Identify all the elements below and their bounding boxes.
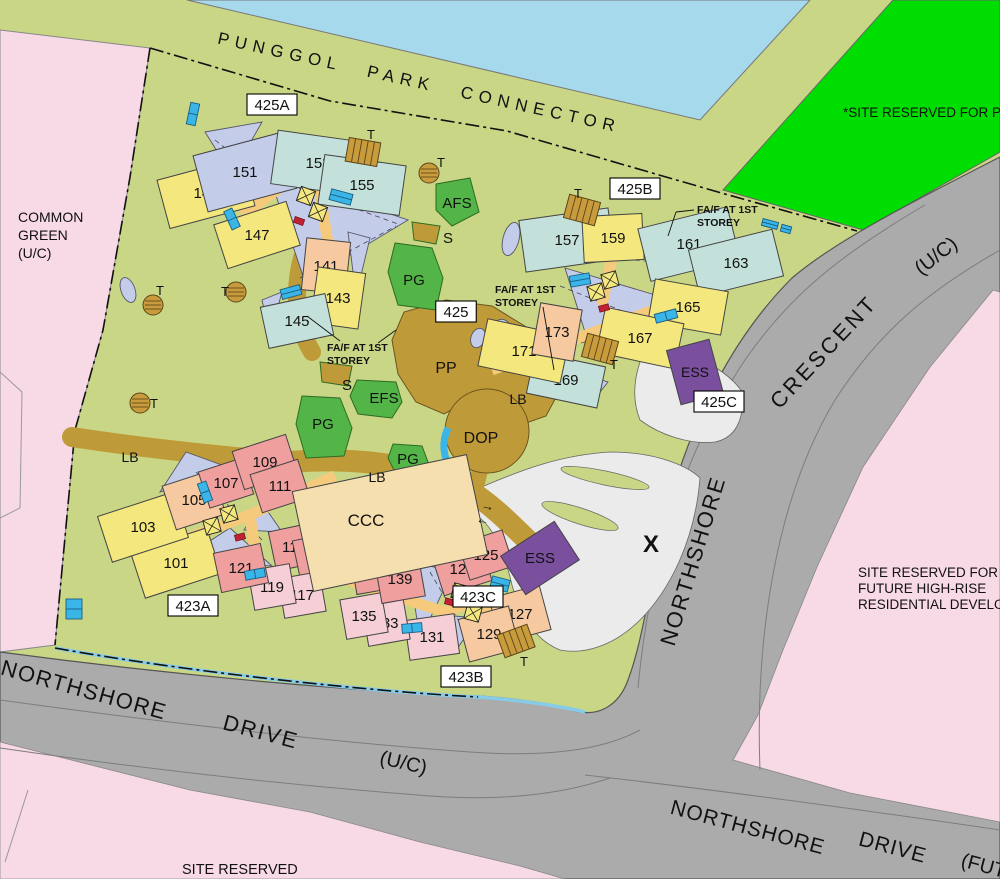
annotation-faf-3: FA/F AT 1ST (697, 204, 758, 216)
building-label-163: 163 (723, 255, 748, 272)
building-label-131: 131 (419, 629, 444, 646)
amenity-marker (402, 623, 423, 634)
building-label-155: 155 (349, 177, 374, 194)
zone-label-highrise-reserve: SITE RESERVED FOR (858, 565, 998, 580)
label-t: T (221, 284, 229, 299)
label-lb: LB (368, 469, 385, 485)
zone-label-highrise-reserve: FUTURE HIGH-RISE (858, 581, 986, 596)
lift-lobby-marker (587, 283, 605, 301)
amenity-marker (66, 599, 82, 619)
building-label-145: 145 (284, 313, 309, 330)
lift-lobby-marker (203, 517, 221, 535)
label-t: T (150, 396, 158, 411)
label-lb: LB (121, 449, 138, 465)
facility-label-pg: PG (312, 416, 334, 433)
building-label-151: 151 (232, 164, 257, 181)
lift-lobby-marker (601, 271, 619, 289)
facility-label-s: S (443, 230, 453, 247)
label-t: T (156, 283, 164, 298)
annotation-faf-2: FA/F AT 1ST (495, 284, 556, 296)
label-t: T (367, 127, 375, 142)
annotation-faf-3: STOREY (697, 217, 740, 229)
tree-marker (130, 393, 150, 413)
site-map-canvas: PGAFSPGEFSPGSS14915115315514714114314515… (0, 0, 1000, 879)
building-label-107: 107 (213, 475, 238, 492)
label-t: T (574, 186, 582, 201)
building-label-103: 103 (130, 519, 155, 536)
building-label-167: 167 (627, 330, 652, 347)
label-pp: PP (435, 360, 456, 377)
label-t: T (437, 155, 445, 170)
label-t: T (520, 654, 528, 669)
zone-label-park-reserve: *SITE RESERVED FOR PA (843, 105, 1000, 120)
lift-lobby-marker (220, 505, 238, 523)
zone-label-common-green: (U/C) (18, 245, 51, 261)
block-label-425A: 425A (254, 97, 289, 114)
building-label-159: 159 (600, 230, 625, 247)
tree-marker (419, 163, 439, 183)
zone-label-common-green: COMMON (18, 209, 83, 225)
tree-marker (143, 295, 163, 315)
label-t: T (610, 357, 618, 372)
facility-label-s: S (342, 377, 352, 394)
trellis-marker (345, 137, 381, 166)
building-label-ESS: ESS (525, 550, 555, 567)
red-x-marker: X (643, 531, 659, 558)
zone-label-highrise-reserve: RESIDENTIAL DEVELOP (858, 597, 1000, 612)
building-label-157: 157 (554, 232, 579, 249)
facility-label-efs: EFS (369, 390, 398, 407)
block-label-425C: 425C (701, 394, 737, 411)
block-label-425: 425 (443, 304, 468, 321)
block-label-423C: 423C (460, 589, 496, 606)
building-label-165: 165 (675, 299, 700, 316)
building-label-143: 143 (325, 290, 350, 307)
building-label-135: 135 (351, 608, 376, 625)
label-dop: DOP (464, 430, 499, 447)
building-label-CCC: CCC (348, 511, 385, 530)
trellis-box (345, 137, 381, 166)
building-label-ESS: ESS (681, 364, 709, 380)
block-label-423A: 423A (175, 598, 210, 615)
zone-label-site-reserved-bottom: SITE RESERVED (182, 862, 298, 878)
building-label-147: 147 (244, 227, 269, 244)
facility-label-afs: AFS (442, 195, 471, 212)
block-label-423B: 423B (448, 669, 483, 686)
annotation-faf-1: FA/F AT 1ST (327, 342, 388, 354)
annotation-faf-2: STOREY (495, 297, 538, 309)
site-plan-page: PGAFSPGEFSPGSS14915115315514714114314515… (0, 0, 1000, 879)
zone-label-common-green: GREEN (18, 227, 68, 243)
tree-marker (226, 282, 246, 302)
building-label-101: 101 (163, 555, 188, 572)
label-lb: LB (509, 391, 526, 407)
facility-s (412, 222, 440, 244)
facility-label-pg: PG (403, 272, 425, 289)
annotation-faf-1: STOREY (327, 355, 370, 367)
block-label-425B: 425B (617, 181, 652, 198)
building-label-111: 111 (269, 478, 292, 495)
